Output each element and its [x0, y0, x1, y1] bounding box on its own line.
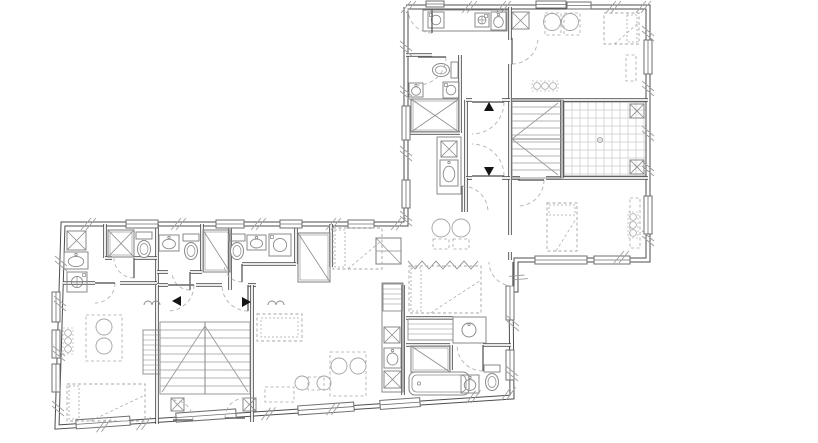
window	[402, 180, 410, 208]
window	[644, 196, 652, 234]
window	[126, 220, 158, 228]
window	[644, 40, 652, 74]
screenshot-root	[0, 0, 818, 443]
window	[348, 220, 374, 228]
window	[536, 1, 566, 8]
window	[402, 106, 410, 140]
window	[506, 286, 514, 320]
window	[216, 220, 244, 228]
dot-fixture	[598, 138, 603, 143]
floor-plan	[0, 0, 818, 443]
window	[506, 350, 514, 380]
window	[567, 2, 591, 9]
window	[426, 1, 444, 7]
window	[52, 292, 60, 322]
window	[280, 220, 302, 228]
window	[535, 256, 587, 264]
window	[594, 256, 630, 264]
window	[52, 364, 60, 392]
